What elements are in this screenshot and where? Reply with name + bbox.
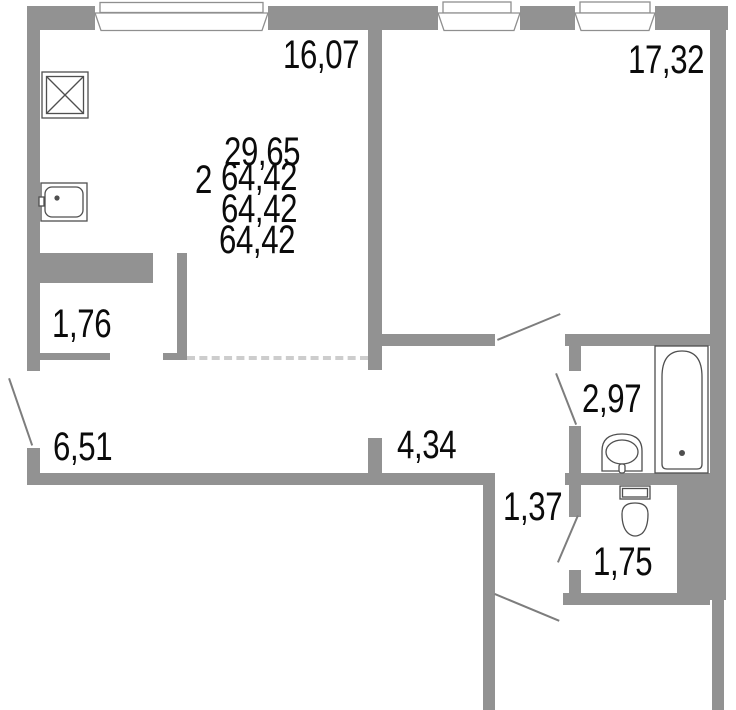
area-label-bedroom: 17,32: [628, 40, 704, 80]
area-label-passage: 1,37: [503, 487, 562, 527]
wall-entry-left: [483, 485, 495, 710]
bedroom-door-swing-line: [497, 313, 560, 340]
wall-wc-left-1: [569, 485, 581, 517]
wall-right-lower: [712, 600, 724, 710]
area-label-wc: 1,75: [593, 542, 652, 582]
bathroom-door-swing-line: [556, 373, 578, 425]
area-label-hall: 6,51: [53, 427, 112, 467]
floor-plan: 16,07 17,32 1,76 6,51 4,34 2,97 1,37 1,7…: [0, 0, 736, 710]
area-label-bathroom: 2,97: [582, 379, 641, 419]
wall-top-2: [268, 6, 438, 30]
area-label-closet: 1,76: [52, 304, 111, 344]
wall-closet-right: [177, 253, 187, 358]
kitchen-sink-icon: [39, 181, 89, 223]
toilet-icon: [614, 484, 654, 540]
wall-bathroom-left-2: [569, 426, 581, 473]
wall-closet-bottom-stub: [163, 353, 187, 360]
area-label-corridor: 4,34: [397, 425, 456, 465]
entrance-door-swing-line: [8, 378, 33, 446]
wall-bathroom-left-1: [569, 346, 581, 371]
bedroom-window-right: [573, 0, 657, 33]
bathtub-icon: [653, 344, 711, 477]
summary-room-count: 2: [195, 160, 212, 200]
wall-center: [368, 30, 382, 370]
summary-total-area-3: 64,42: [219, 220, 295, 260]
duct-block: [677, 483, 713, 600]
wall-wc-left-2: [569, 570, 581, 593]
wall-center-stub: [368, 438, 382, 473]
wall-closet-top: [40, 253, 153, 283]
wall-top-3: [520, 6, 575, 30]
wall-bedroom-bottom-1: [382, 334, 495, 346]
washbasin-icon: [598, 430, 646, 473]
bedroom-window-left: [436, 0, 522, 33]
stove-icon: [40, 70, 90, 120]
zone-boundary-dashed-line: [187, 356, 368, 360]
area-label-kitchen-living: 16,07: [283, 35, 359, 75]
wall-hall-bottom: [27, 473, 495, 485]
wall-closet-bottom: [40, 353, 110, 360]
kitchen-window: [93, 0, 270, 33]
entry-hall-door-swing-line: [494, 593, 559, 621]
